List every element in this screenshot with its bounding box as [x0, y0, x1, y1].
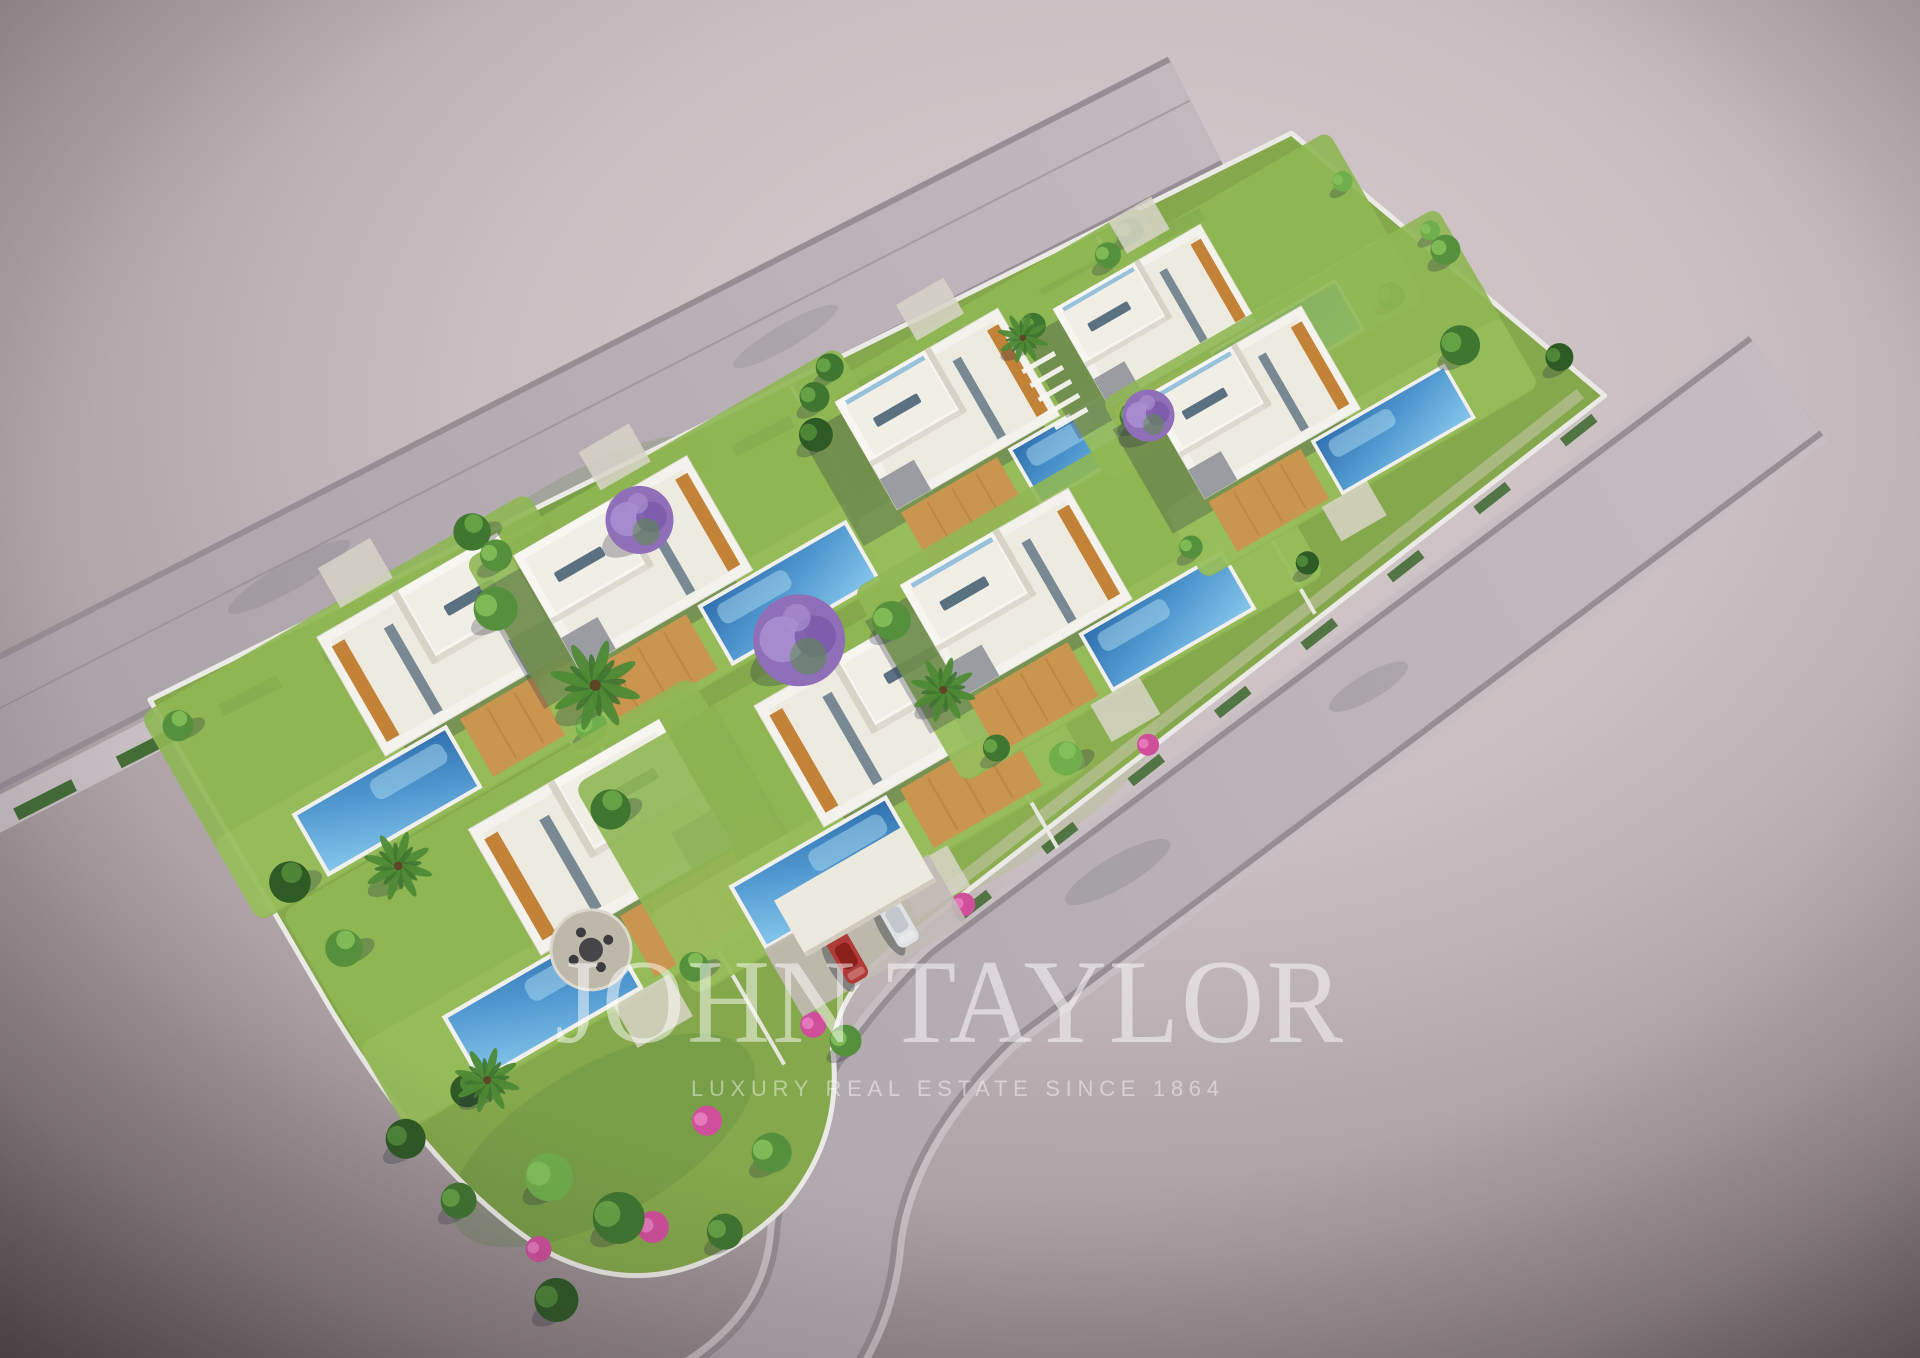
real-estate-aerial-render: JOHN TAYLOR LUXURY REAL ESTATE SINCE 186… [0, 0, 1920, 1358]
aerial-render-canvas: JOHN TAYLOR LUXURY REAL ESTATE SINCE 186… [0, 0, 1920, 1358]
vignette-overlay [0, 0, 1920, 1358]
watermark-brand-text: JOHN TAYLOR [555, 935, 1345, 1068]
